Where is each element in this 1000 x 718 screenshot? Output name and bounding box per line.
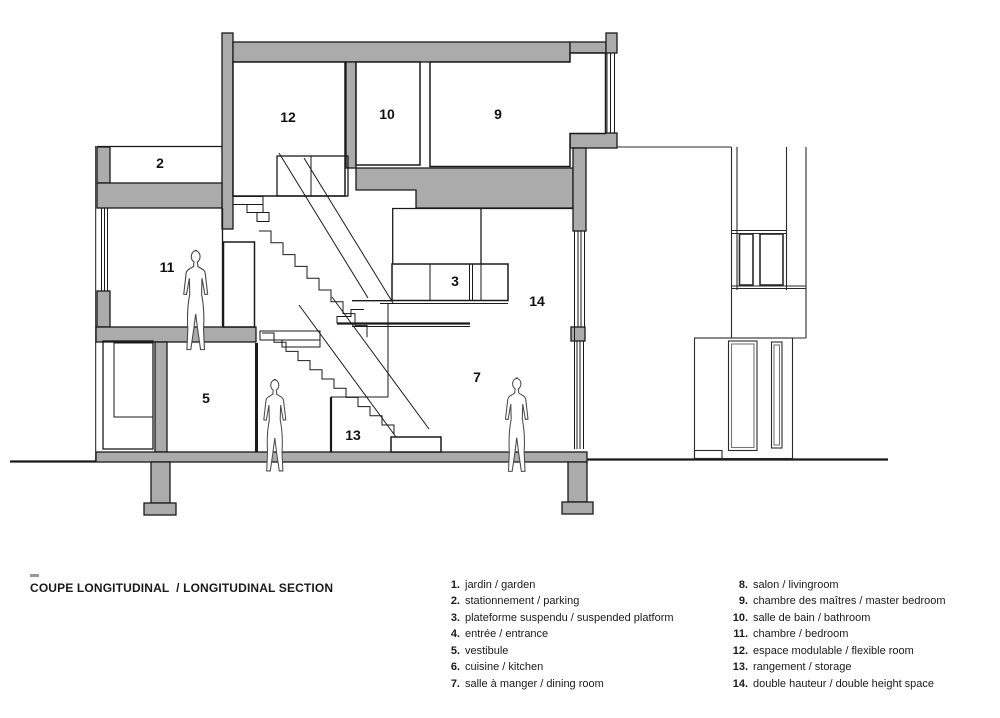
roof-parapet-right bbox=[606, 33, 617, 53]
legend-label: double hauteur / double height space bbox=[753, 676, 934, 692]
center-wall bbox=[222, 33, 233, 229]
legend-item-4: 4.entrée / entrance bbox=[434, 626, 674, 642]
shelf-step-1 bbox=[233, 197, 263, 205]
lower-shelf-2 bbox=[282, 340, 320, 347]
upper-flight-steps bbox=[259, 231, 367, 337]
legend-item-1: 1.jardin / garden bbox=[434, 577, 674, 593]
footing-cap-left bbox=[144, 503, 176, 515]
room-label-7: 7 bbox=[473, 369, 481, 385]
window-roof-level bbox=[607, 53, 615, 133]
facade-sidelite-inner bbox=[774, 345, 780, 445]
architectural-drawing-page: 2 12 10 9 11 3 14 5 13 7 COUPE LONGITUDI… bbox=[0, 0, 1000, 718]
legend-number: 11. bbox=[722, 626, 748, 642]
legend-number: 10. bbox=[722, 610, 748, 626]
window-spandrel bbox=[571, 327, 585, 341]
legend-item-8: 8.salon / livingroom bbox=[722, 577, 946, 593]
legend-label: chambre des maîtres / master bedroom bbox=[753, 593, 946, 609]
room-label-3: 3 bbox=[451, 273, 459, 289]
footing-stem-right bbox=[568, 462, 587, 502]
legend-number: 8. bbox=[722, 577, 748, 593]
legend-item-10: 10.salle de bain / bathroom bbox=[722, 610, 946, 626]
legend-item-12: 12.espace modulable / flexible room bbox=[722, 643, 946, 659]
legend-label: stationnement / parking bbox=[465, 593, 579, 609]
left-wall-mid bbox=[97, 291, 110, 327]
facade-base-step bbox=[695, 451, 723, 459]
legend-label: salle de bain / bathroom bbox=[753, 610, 870, 626]
room-12-outline bbox=[233, 62, 345, 196]
legend-item-2: 2.stationnement / parking bbox=[434, 593, 674, 609]
room-label-9: 9 bbox=[494, 106, 502, 122]
legend-column-1: 1.jardin / garden 2.stationnement / park… bbox=[434, 577, 674, 692]
room-label-10: 10 bbox=[379, 106, 395, 122]
legend-number: 7. bbox=[434, 676, 460, 692]
legend-number: 3. bbox=[434, 610, 460, 626]
room11-floor-slab bbox=[96, 327, 256, 342]
closet-inner-panel bbox=[114, 343, 153, 417]
roof-slab bbox=[233, 42, 570, 62]
room-label-12: 12 bbox=[280, 109, 296, 125]
lower-railing-1 bbox=[299, 305, 396, 437]
facade-sidelite bbox=[772, 342, 783, 448]
title-block: COUPE LONGITUDINAL / LONGITUDINAL SECTIO… bbox=[30, 574, 333, 595]
room-label-11: 11 bbox=[160, 259, 175, 275]
title-dash bbox=[30, 574, 39, 577]
legend-number: 13. bbox=[722, 659, 748, 675]
window-head-slab bbox=[570, 133, 617, 148]
legend-number: 14. bbox=[722, 676, 748, 692]
room-label-14: 14 bbox=[529, 293, 545, 309]
lower-flight-steps bbox=[262, 333, 394, 434]
legend-item-11: 11.chambre / bedroom bbox=[722, 626, 946, 642]
facade-pane-small bbox=[740, 234, 754, 285]
legend-item-5: 5.vestibule bbox=[434, 643, 674, 659]
room-label-2: 2 bbox=[156, 155, 164, 171]
right-cut-wall bbox=[573, 148, 586, 231]
legend-label: vestibule bbox=[465, 643, 508, 659]
legend-label: jardin / garden bbox=[465, 577, 535, 593]
legend-number: 2. bbox=[434, 593, 460, 609]
legend-label: plateforme suspendu / suspended platform bbox=[465, 610, 674, 626]
left-wall-upper bbox=[97, 147, 110, 183]
legend-number: 4. bbox=[434, 626, 460, 642]
far-facade-elevation bbox=[617, 147, 806, 459]
legend-label: espace modulable / flexible room bbox=[753, 643, 914, 659]
footing-cap-right bbox=[562, 502, 593, 514]
legend-item-14: 14.double hauteur / double height space bbox=[722, 676, 946, 692]
legend-number: 6. bbox=[434, 659, 460, 675]
lower-railing-2 bbox=[332, 297, 429, 429]
facade-door-inner bbox=[732, 344, 755, 448]
suspended-platform bbox=[352, 208, 573, 304]
mid-floor-slab bbox=[356, 168, 573, 208]
legend-item-7: 7.salle à manger / dining room bbox=[434, 676, 674, 692]
platform-box bbox=[392, 264, 508, 301]
legend-item-13: 13.rangement / storage bbox=[722, 659, 946, 675]
facade-door bbox=[729, 341, 758, 451]
legend-label: cuisine / kitchen bbox=[465, 659, 543, 675]
facade-pane-large bbox=[760, 234, 783, 285]
legend-number: 12. bbox=[722, 643, 748, 659]
stair-plinth bbox=[391, 437, 441, 452]
lower-facade-outline bbox=[695, 338, 793, 459]
legend-label: entrée / entrance bbox=[465, 626, 548, 642]
room-label-5: 5 bbox=[202, 390, 210, 406]
shelf-step-2 bbox=[247, 205, 263, 213]
vestibule-wall bbox=[155, 342, 167, 452]
legend-item-9: 9.chambre des maîtres / master bedroom bbox=[722, 593, 946, 609]
window-room11 bbox=[102, 208, 108, 291]
legend-item-3: 3.plateforme suspendu / suspended platfo… bbox=[434, 610, 674, 626]
legend-label: salon / livingroom bbox=[753, 577, 839, 593]
legend-number: 9. bbox=[722, 593, 748, 609]
footing-stem-left bbox=[151, 462, 170, 503]
wall-between-12-10 bbox=[346, 62, 356, 168]
door-panel bbox=[224, 242, 255, 327]
legend-item-6: 6.cuisine / kitchen bbox=[434, 659, 674, 675]
longitudinal-section-drawing: 2 12 10 9 11 3 14 5 13 7 bbox=[0, 0, 1000, 540]
section-title: COUPE LONGITUDINAL / LONGITUDINAL SECTIO… bbox=[30, 581, 333, 595]
room-label-13: 13 bbox=[345, 427, 361, 443]
closet-outline bbox=[103, 341, 153, 449]
shelf-step-3 bbox=[257, 213, 269, 222]
legend-column-2: 8.salon / livingroom 9.chambre des maîtr… bbox=[722, 577, 946, 692]
legend-number: 1. bbox=[434, 577, 460, 593]
legend-label: salle à manger / dining room bbox=[465, 676, 604, 692]
legend-label: chambre / bedroom bbox=[753, 626, 848, 642]
roof-slab-thin bbox=[570, 42, 606, 53]
lower-shelf-1 bbox=[260, 331, 320, 340]
legend-label: rangement / storage bbox=[753, 659, 851, 675]
legend-number: 5. bbox=[434, 643, 460, 659]
room2-floor-slab bbox=[97, 183, 222, 208]
